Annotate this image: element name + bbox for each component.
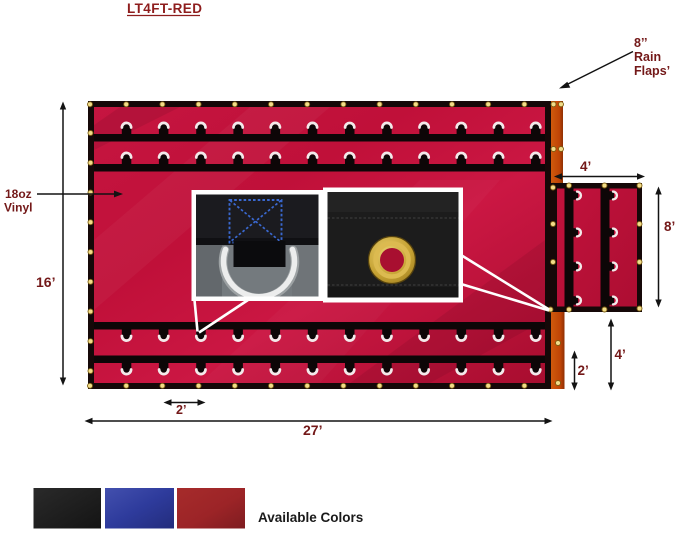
svg-text:16’: 16’	[36, 274, 55, 290]
svg-text:27’: 27’	[303, 422, 322, 438]
svg-text:8’: 8’	[664, 219, 675, 234]
svg-text:2’: 2’	[578, 363, 589, 378]
svg-text:4’: 4’	[580, 159, 591, 174]
svg-text:Rain: Rain	[634, 50, 661, 64]
svg-text:4’: 4’	[615, 347, 626, 362]
svg-text:Vinyl: Vinyl	[4, 201, 32, 215]
svg-text:8’’: 8’’	[634, 36, 647, 50]
svg-text:2’: 2’	[176, 403, 186, 417]
svg-text:LT4FT-RED: LT4FT-RED	[127, 1, 202, 16]
svg-text:18oz: 18oz	[5, 187, 32, 201]
svg-text:Available Colors: Available Colors	[258, 510, 363, 525]
svg-text:Flaps’: Flaps’	[634, 64, 670, 78]
